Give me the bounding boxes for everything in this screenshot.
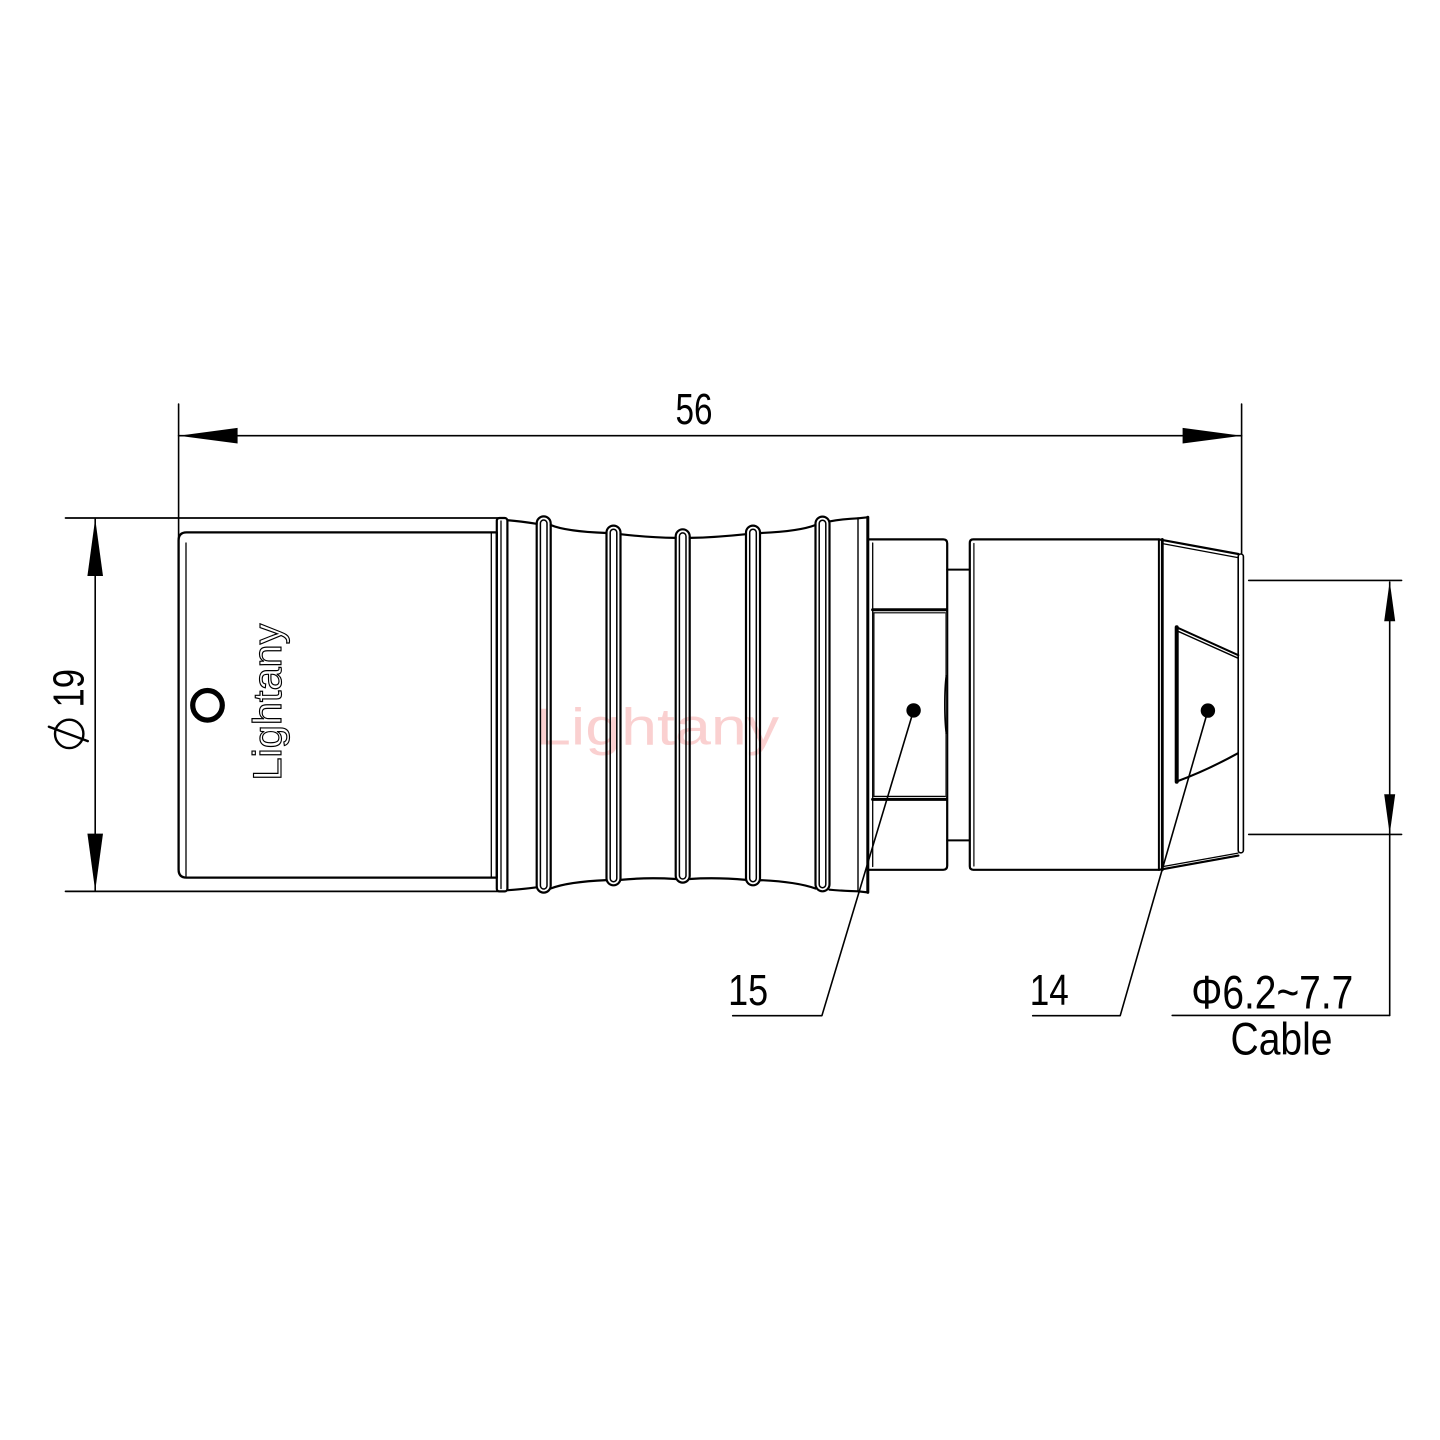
svg-text:Lightany: Lightany [246,624,290,781]
svg-text:19: 19 [45,669,93,708]
svg-text:56: 56 [676,386,713,434]
svg-text:Φ6.2~7.7: Φ6.2~7.7 [1191,965,1353,1018]
svg-text:15: 15 [728,967,768,1015]
svg-text:Cable: Cable [1231,1014,1333,1065]
svg-text:Lightany: Lightany [535,698,779,756]
svg-text:14: 14 [1030,967,1069,1015]
